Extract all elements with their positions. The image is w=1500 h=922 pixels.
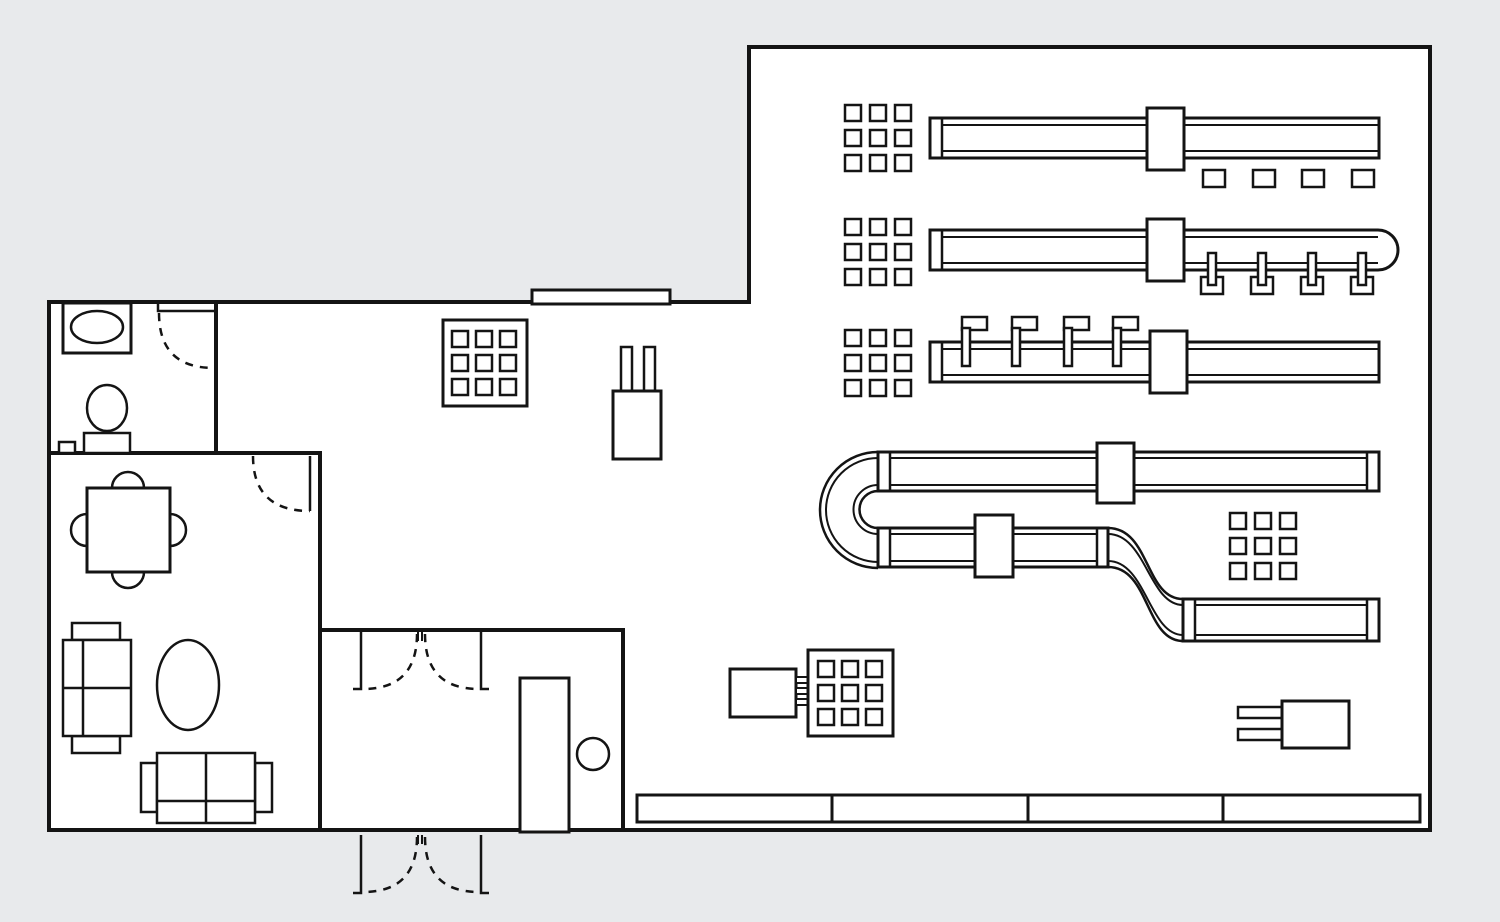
mid-machine-prong-2 [644,347,655,392]
conveyor3-station-stem-4 [1113,328,1121,366]
conveyor1-machine [1147,108,1184,170]
packing-machine-stub-1 [796,677,808,683]
exterior-door-swing-left [363,837,417,892]
corner-machine-prong-2 [1238,729,1283,740]
conveyor1-tote-4 [1352,170,1374,187]
conveyor2-machine [1147,219,1184,281]
conveyor1-tote-3 [1302,170,1324,187]
packing-machine-body [730,669,796,717]
mid-machine-prong-1 [621,347,632,392]
mid-machine-body [613,391,661,459]
bathroom-shelf [59,442,75,453]
corner-machine-body [1282,701,1349,748]
exterior-jamb-bottom-right [481,835,489,893]
exterior-jamb-bottom-left [353,835,361,893]
conveyor1-tote-2 [1253,170,1275,187]
serpentine-machine-A [1097,443,1134,503]
toilet-tank [84,433,130,453]
floor-plan-page [0,0,1500,922]
sofa-horizontal-armrest-left [141,763,157,812]
conveyor2-station-stem-2 [1258,253,1266,285]
vestibule-partition [520,678,569,832]
sofa-horizontal-armrest-right [255,763,272,812]
packing-machine-stub-3 [796,699,808,705]
floor-plan-canvas [0,0,1500,922]
conveyor3-station-stem-3 [1064,328,1072,366]
corner-machine-prong-1 [1238,707,1283,718]
packing-machine-stub-2 [796,688,808,694]
serpentine-machine-B [975,515,1013,577]
workbench-frame [443,320,527,406]
conveyor1-tote-1 [1203,170,1225,187]
conveyor3-machine [1150,331,1187,393]
wall-window [532,290,670,304]
packing-pallet-frame [808,650,893,736]
exterior-door-swing-right [425,837,479,892]
conveyor2-station-stem-4 [1358,253,1366,285]
conveyor3-station-stem-1 [962,328,970,366]
meeting-table [87,488,170,572]
sofa-vertical-armrest-bottom [72,736,120,753]
sofa-vertical-armrest-top [72,623,120,640]
conveyor2-station-stem-1 [1208,253,1216,285]
toilet-bowl [87,385,127,431]
conveyor2-station-stem-3 [1308,253,1316,285]
conveyor3-station-stem-2 [1012,328,1020,366]
